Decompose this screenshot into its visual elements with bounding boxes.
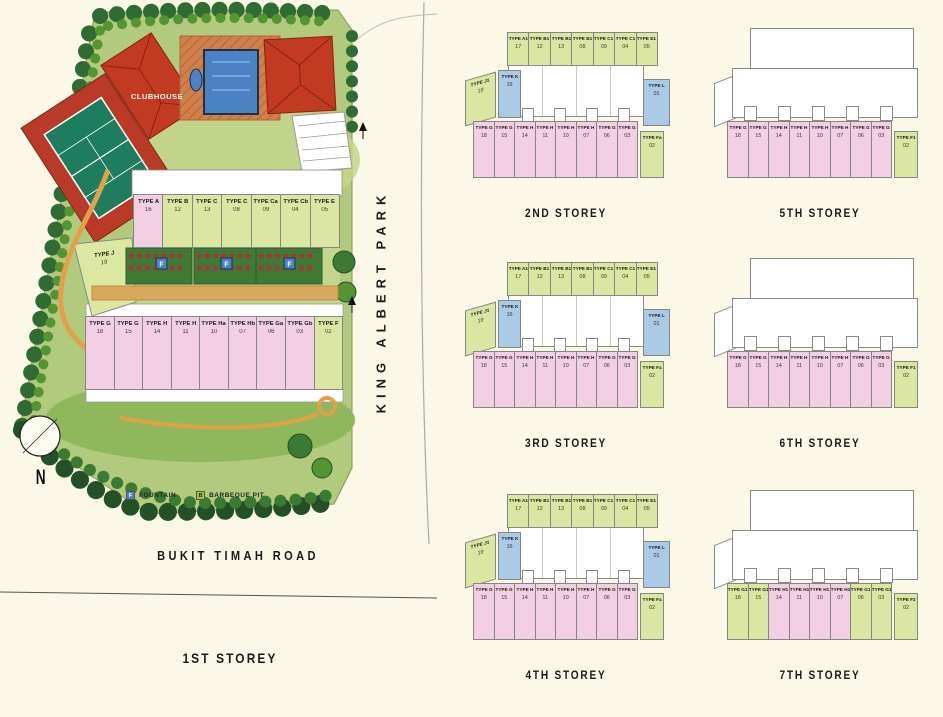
stair-core: [812, 106, 825, 121]
unit-cell: TYPE G06: [850, 121, 872, 178]
unit-cell: TYPE H11: [535, 583, 557, 640]
unit-type-label: TYPE K: [501, 305, 518, 311]
unit-cell: TYPE H10: [809, 121, 831, 178]
unit-number-label: 07: [583, 133, 589, 139]
lower-unit-row: TYPE G18TYPE G15TYPE H14TYPE H11TYPE Ha1…: [86, 316, 343, 390]
unit-type-label: TYPE E1: [637, 267, 656, 273]
unit-cell: TYPE G15: [114, 316, 144, 390]
unit-type-label: TYPE H1: [810, 588, 829, 594]
unit-cell: TYPE Cb04: [280, 194, 310, 248]
unit-number-label: 07: [837, 595, 843, 601]
stair-core: [778, 336, 791, 351]
stair-core: [744, 568, 757, 583]
unit-cell: TYPE H10: [555, 583, 577, 640]
unit-cell: TYPE G18: [473, 351, 495, 408]
unit-cell: TYPE H110: [809, 583, 831, 640]
unit-cell: TYPE G15: [494, 351, 516, 408]
unit-cell: TYPE H10: [809, 351, 831, 408]
unit-number-label: 11: [796, 133, 802, 139]
unit-number-label: 15: [755, 595, 761, 601]
fountain-symbol: F: [224, 262, 229, 269]
floor-plan-2nd-storey: TYPE A117TYPE B112TYPE B113TYPE B108TYPE…: [444, 20, 688, 250]
unit-number-label: 06: [858, 363, 864, 369]
unit-type-label: TYPE E1: [637, 37, 656, 43]
unit-number-label: 06: [268, 329, 275, 336]
unit-cell: TYPE B108: [571, 262, 593, 296]
unit-type-label: TYPE B1: [551, 499, 570, 505]
unit-type-label: TYPE C1: [594, 37, 613, 43]
unit-cell: TYPE B113: [550, 32, 572, 66]
unit-number-label: 11: [182, 329, 188, 336]
stair-core: [522, 108, 534, 122]
unit-type-label: TYPE G: [496, 588, 513, 594]
unit-number-label: 14: [776, 595, 782, 601]
unit-type-label: TYPE Fa: [643, 598, 662, 604]
stair-core: [586, 570, 598, 584]
legend-item-fountain: F FOUNTAIN: [126, 491, 176, 500]
unit-number-label: 02: [903, 143, 909, 149]
unit-cell: TYPE Ha10: [199, 316, 229, 390]
floor-plan-6th-storey: TYPE G18TYPE G15TYPE H14TYPE H11TYPE H10…: [698, 250, 942, 480]
unit-cell: TYPE A117: [507, 262, 529, 296]
unit-type-label: TYPE G: [619, 356, 636, 362]
unit-type-label: TYPE H: [791, 126, 808, 132]
unit-type-label: TYPE Fa: [643, 136, 662, 142]
unit-cell: TYPE H14: [514, 583, 536, 640]
unit-number-label: 18: [735, 595, 741, 601]
unit-type-label: TYPE F1: [897, 136, 916, 142]
unit-number-label: 10: [563, 133, 569, 139]
unit-cell: TYPE Fa02: [640, 593, 664, 640]
floor-plan-drawing: TYPE G18TYPE G15TYPE H14TYPE H11TYPE H10…: [698, 250, 942, 432]
unit-type-label: TYPE G: [852, 356, 869, 362]
unit-number-label: 03: [624, 133, 630, 139]
unit-cell: TYPE G15: [748, 351, 770, 408]
floor-plan-5th-storey: TYPE G18TYPE G15TYPE H14TYPE H11TYPE H10…: [698, 20, 942, 250]
unit-cell: TYPE C104: [614, 262, 636, 296]
unit-cell: TYPE H10: [555, 121, 577, 178]
unit-number-label: 17: [515, 44, 521, 50]
unit-number-label: 03: [878, 363, 884, 369]
unit-cell: TYPE H14: [768, 121, 790, 178]
unit-number-label: 07: [837, 133, 843, 139]
unit-type-label: TYPE C1: [616, 37, 635, 43]
unit-cell: TYPE G115: [748, 583, 770, 640]
unit-type-label: TYPE F: [318, 320, 338, 327]
unit-number-label: 18: [481, 133, 487, 139]
unit-type-label: TYPE C1: [594, 499, 613, 505]
unit-number-label: 10: [817, 133, 823, 139]
unit-type-label: TYPE G1: [851, 588, 871, 594]
unit-number-label: 12: [537, 506, 543, 512]
unit-type-label: TYPE H: [557, 588, 574, 594]
unit-cell: TYPE H11: [535, 121, 557, 178]
storey-label-1st: 1ST STOREY: [149, 650, 311, 666]
stair-core: [880, 336, 893, 351]
unit-cell: TYPE G18: [473, 583, 495, 640]
unit-cell: TYPE G15: [494, 121, 516, 178]
unit-cell: TYPE B112: [528, 262, 550, 296]
roof-outline: [750, 490, 914, 532]
road-label-bukit-timah: BUKIT TIMAH ROAD: [136, 548, 340, 563]
unit-type-label: TYPE G: [496, 126, 513, 132]
unit-cell: TYPE Fa02: [640, 131, 664, 178]
stair-core: [554, 108, 566, 122]
unit-number-label: 13: [204, 207, 211, 214]
unit-type-label: TYPE G: [729, 356, 746, 362]
unit-number-label: 12: [537, 44, 543, 50]
unit-type-label: TYPE G: [598, 126, 615, 132]
floor-plan-drawing: TYPE G18TYPE G15TYPE H14TYPE H11TYPE H10…: [698, 20, 942, 202]
unit-number-label: 06: [858, 595, 864, 601]
upper-block-roofline: [132, 170, 342, 196]
unit-type-label: TYPE C1: [594, 267, 613, 273]
unit-cell: TYPE B112: [528, 494, 550, 528]
unit-number-label: 15: [755, 363, 761, 369]
unit-cell: TYPE B112: [528, 32, 550, 66]
unit-number-label: 18: [96, 329, 103, 336]
unit-number-label: 19: [477, 87, 483, 95]
unit-number-label: 12: [537, 274, 543, 280]
lower-block-balconies: [86, 388, 343, 402]
unit-number-label: 10: [563, 363, 569, 369]
fountain-symbol: F: [159, 262, 164, 269]
floor-title: 7TH STOREY: [713, 670, 928, 682]
unit-cell: TYPE J19: [78, 244, 130, 307]
unit-number-label: 02: [325, 329, 332, 336]
unit-type-label: TYPE H: [770, 356, 787, 362]
fountain-symbol: F: [287, 262, 292, 269]
unit-type-label: TYPE Cb: [283, 198, 308, 205]
unit-type-label: TYPE H: [557, 126, 574, 132]
unit-type-label: TYPE K: [501, 75, 518, 81]
floor-title: 6TH STOREY: [713, 438, 928, 450]
unit-type-label: TYPE L: [648, 84, 664, 90]
unit-number-label: 11: [796, 595, 802, 601]
unit-type-label: TYPE C: [226, 198, 247, 205]
unit-cell: TYPE B113: [550, 262, 572, 296]
unit-number-label: 13: [558, 506, 564, 512]
stair-core: [846, 336, 859, 351]
swimming-pool: [204, 50, 258, 114]
unit-cell: TYPE H07: [576, 351, 598, 408]
unit-number-label: 10: [211, 329, 218, 336]
floor-plan-drawing: TYPE A117TYPE B112TYPE B113TYPE B108TYPE…: [444, 482, 688, 664]
unit-cell: TYPE G15: [494, 583, 516, 640]
unit-type-label: TYPE H: [516, 588, 533, 594]
unit-type-label: TYPE Hb: [230, 320, 255, 327]
stair-core: [880, 106, 893, 121]
unit-cell: TYPE F202: [894, 593, 918, 640]
top-unit-row: TYPE A117TYPE B112TYPE B113TYPE B108TYPE…: [508, 262, 658, 296]
stair-core: [846, 106, 859, 121]
entrance-arrow: [359, 122, 367, 139]
unit-cell: TYPE G118: [727, 583, 749, 640]
unit-number-label: 16: [506, 544, 512, 550]
unit-type-label: TYPE G1: [728, 588, 748, 594]
unit-number-label: 18: [735, 363, 741, 369]
stair-core: [586, 338, 598, 352]
unit-number-label: 06: [604, 595, 610, 601]
roof-outline: [750, 28, 914, 70]
unit-number-label: 15: [501, 595, 507, 601]
clubhouse-roof-2: [264, 36, 336, 113]
unit-type-label: TYPE G: [475, 356, 492, 362]
jacuzzi: [190, 69, 202, 91]
unit-cell: TYPE H111: [789, 583, 811, 640]
unit-type-label: TYPE Ca: [254, 198, 278, 205]
legend-label: BARBEQUE PIT: [209, 492, 264, 499]
floor-title: 5TH STOREY: [713, 208, 928, 220]
unit-type-label: TYPE B1: [530, 267, 549, 273]
floor-title: 4TH STOREY: [459, 670, 674, 682]
unit-number-label: 07: [239, 329, 246, 336]
unit-type-label: TYPE H: [557, 356, 574, 362]
unit-type-label: TYPE H: [537, 126, 554, 132]
floor-plan-4th-storey: TYPE A117TYPE B112TYPE B113TYPE B108TYPE…: [444, 482, 688, 712]
unit-cell: TYPE G18: [727, 351, 749, 408]
unit-type-label: TYPE G: [873, 356, 890, 362]
unit-number-label: 09: [601, 274, 607, 280]
unit-number-label: 14: [522, 595, 528, 601]
stair-core: [554, 570, 566, 584]
unit-number-label: 03: [878, 595, 884, 601]
floor-title: 3RD STOREY: [459, 438, 674, 450]
unit-cell: TYPE H07: [830, 121, 852, 178]
unit-number-label: 16: [145, 207, 152, 214]
unit-number-label: 11: [542, 133, 548, 139]
unit-type-label: TYPE A1: [509, 267, 528, 273]
floor-plan-3rd-storey: TYPE A117TYPE B112TYPE B113TYPE B108TYPE…: [444, 250, 688, 480]
legend-label: FOUNTAIN: [139, 492, 176, 499]
stair-core: [522, 338, 534, 352]
unit-cell: TYPE G06: [596, 583, 618, 640]
unit-type-label: TYPE G: [118, 320, 139, 327]
fountain-legend-icon: F: [126, 491, 135, 500]
unit-cell: TYPE F102: [894, 361, 918, 408]
unit-type-label: TYPE A: [138, 198, 159, 205]
unit-cell: TYPE L01: [643, 309, 670, 356]
unit-type-label: TYPE B1: [573, 499, 592, 505]
unit-type-label: TYPE J: [94, 250, 114, 260]
legend: F FOUNTAIN B BARBEQUE PIT: [126, 491, 264, 500]
unit-number-label: 18: [481, 595, 487, 601]
unit-cell: TYPE F02: [314, 316, 344, 390]
unit-type-label: TYPE G: [852, 126, 869, 132]
unit-cell: TYPE G18: [727, 121, 749, 178]
unit-number-label: 12: [174, 207, 181, 214]
unit-cell: TYPE G03: [617, 583, 639, 640]
unit-type-label: TYPE H1: [769, 588, 788, 594]
stair-core: [554, 338, 566, 352]
bottom-unit-row: TYPE G18TYPE G15TYPE H14TYPE H11TYPE H10…: [728, 351, 892, 408]
unit-cell: TYPE Gb03: [285, 316, 315, 390]
unit-number-label: 15: [501, 133, 507, 139]
unit-number-label: 03: [624, 595, 630, 601]
unit-number-label: 05: [644, 44, 650, 50]
unit-cell: TYPE Ca09: [251, 194, 281, 248]
floor-plan-7th-storey: TYPE G118TYPE G115TYPE H114TYPE H111TYPE…: [698, 482, 942, 712]
top-unit-row: TYPE A117TYPE B112TYPE B113TYPE B108TYPE…: [508, 32, 658, 66]
unit-number-label: 14: [776, 363, 782, 369]
unit-cell: TYPE B113: [550, 494, 572, 528]
unit-cell: TYPE J119: [465, 302, 496, 357]
unit-number-label: 10: [817, 363, 823, 369]
unit-type-label: TYPE B1: [573, 37, 592, 43]
unit-number-label: 02: [903, 373, 909, 379]
unit-cell: TYPE H114: [768, 583, 790, 640]
unit-number-label: 17: [515, 274, 521, 280]
top-unit-row: TYPE A117TYPE B112TYPE B113TYPE B108TYPE…: [508, 494, 658, 528]
unit-number-label: 04: [292, 207, 299, 214]
unit-type-label: TYPE G: [475, 126, 492, 132]
unit-number-label: 03: [624, 363, 630, 369]
tree: [312, 458, 332, 478]
unit-number-label: 13: [558, 44, 564, 50]
unit-number-label: 03: [878, 133, 884, 139]
unit-number-label: 19: [477, 317, 483, 325]
tree: [288, 434, 312, 458]
brochure-page: F F F CLUBHOUSE N TYPE A16TYPE B12T: [0, 0, 943, 717]
unit-cell: TYPE G03: [871, 351, 893, 408]
unit-number-label: 15: [125, 329, 132, 336]
bottom-unit-row: TYPE G18TYPE G15TYPE H14TYPE H11TYPE H10…: [728, 121, 892, 178]
unit-cell: TYPE Hb07: [228, 316, 258, 390]
stair-core: [846, 568, 859, 583]
unit-cell: TYPE C08: [221, 194, 251, 248]
unit-number-label: 11: [542, 595, 548, 601]
unit-type-label: TYPE G: [619, 126, 636, 132]
unit-type-label: TYPE G: [89, 320, 110, 327]
unit-cell: TYPE G106: [850, 583, 872, 640]
unit-number-label: 06: [604, 363, 610, 369]
legend-item-barbeque: B BARBEQUE PIT: [196, 491, 264, 500]
unit-cell: TYPE L01: [643, 541, 670, 588]
unit-cell: TYPE H11: [789, 121, 811, 178]
unit-type-label: TYPE H: [516, 356, 533, 362]
unit-cell: TYPE H14: [514, 121, 536, 178]
stair-core: [880, 568, 893, 583]
unit-cell: TYPE E105: [636, 32, 658, 66]
unit-cell: TYPE J119: [465, 534, 496, 589]
unit-cell: TYPE G15: [748, 121, 770, 178]
unit-type-label: TYPE H: [146, 320, 167, 327]
unit-cell: TYPE B12: [162, 194, 192, 248]
barbeque-legend-icon: B: [196, 491, 205, 500]
stair-core: [744, 106, 757, 121]
unit-number-label: 18: [481, 363, 487, 369]
unit-type-label: TYPE B1: [530, 37, 549, 43]
bottom-unit-row: TYPE G18TYPE G15TYPE H14TYPE H11TYPE H10…: [474, 121, 638, 178]
unit-number-label: 14: [522, 363, 528, 369]
king-albert-park-road-edge: [421, 2, 429, 544]
unit-type-label: TYPE A1: [509, 37, 528, 43]
unit-cell: TYPE F102: [894, 131, 918, 178]
unit-type-label: TYPE C1: [616, 267, 635, 273]
unit-cell: TYPE G06: [850, 351, 872, 408]
unit-type-label: TYPE B1: [530, 499, 549, 505]
unit-number-label: 06: [858, 133, 864, 139]
unit-number-label: 10: [563, 595, 569, 601]
unit-cell: TYPE H14: [142, 316, 172, 390]
unit-type-label: TYPE G: [598, 588, 615, 594]
clubhouse-label: CLUBHOUSE: [131, 92, 183, 101]
unit-type-label: TYPE H1: [831, 588, 850, 594]
unit-cell: TYPE H07: [576, 121, 598, 178]
stair-core: [812, 568, 825, 583]
unit-type-label: TYPE Fa: [643, 366, 662, 372]
unit-number-label: 01: [653, 91, 659, 97]
unit-cell: TYPE H14: [768, 351, 790, 408]
unit-cell: TYPE G03: [617, 351, 639, 408]
road-label-king-albert-park: KING ALBERT PARK: [374, 173, 389, 431]
unit-type-label: TYPE E1: [637, 499, 656, 505]
unit-type-label: TYPE H1: [790, 588, 809, 594]
tree: [333, 251, 355, 273]
unit-cell: TYPE E105: [636, 494, 658, 528]
stair-core: [586, 108, 598, 122]
unit-number-label: 08: [233, 207, 240, 214]
bottom-unit-row: TYPE G18TYPE G15TYPE H14TYPE H11TYPE H10…: [474, 351, 638, 408]
unit-type-label: TYPE G: [475, 588, 492, 594]
site-plan: F F F CLUBHOUSE N TYPE A16TYPE B12T: [0, 0, 437, 717]
unit-type-label: TYPE G: [598, 356, 615, 362]
unit-cell: TYPE H11: [535, 351, 557, 408]
unit-type-label: TYPE A1: [509, 499, 528, 505]
unit-type-label: TYPE G: [873, 126, 890, 132]
unit-type-label: TYPE Ha: [202, 320, 226, 327]
unit-number-label: 07: [583, 595, 589, 601]
bottom-unit-row: TYPE G118TYPE G115TYPE H114TYPE H111TYPE…: [728, 583, 892, 640]
unit-cell: TYPE G18: [85, 316, 115, 390]
unit-number-label: 10: [817, 595, 823, 601]
unit-number-label: 11: [796, 363, 802, 369]
unit-type-label: TYPE L: [648, 314, 664, 320]
unit-number-label: 02: [649, 373, 655, 379]
unit-type-label: TYPE K: [501, 537, 518, 543]
unit-number-label: 05: [321, 207, 328, 214]
unit-number-label: 08: [579, 274, 585, 280]
unit-cell: TYPE E105: [636, 262, 658, 296]
unit-type-label: TYPE H: [811, 356, 828, 362]
stair-core: [778, 568, 791, 583]
unit-cell: TYPE H107: [830, 583, 852, 640]
unit-type-label: TYPE H: [578, 126, 595, 132]
unit-number-label: 07: [583, 363, 589, 369]
stair-core: [778, 106, 791, 121]
unit-type-label: TYPE H: [537, 356, 554, 362]
bukit-timah-road-edge: [0, 592, 437, 598]
unit-type-label: TYPE C: [196, 198, 217, 205]
unit-type-label: TYPE H: [832, 356, 849, 362]
floor-plan-drawing: TYPE A117TYPE B112TYPE B113TYPE B108TYPE…: [444, 20, 688, 202]
unit-type-label: TYPE H: [578, 356, 595, 362]
unit-type-label: TYPE H: [537, 588, 554, 594]
unit-cell: TYPE A16: [133, 194, 163, 248]
unit-type-label: TYPE E: [314, 198, 335, 205]
unit-cell: TYPE K16: [498, 70, 521, 118]
unit-cell: TYPE H11: [789, 351, 811, 408]
unit-cell: TYPE J119: [465, 72, 496, 127]
unit-number-label: 09: [601, 44, 607, 50]
compass-rose: [20, 416, 60, 456]
unit-cell: TYPE H14: [514, 351, 536, 408]
unit-cell: TYPE H07: [830, 351, 852, 408]
unit-cell: TYPE C109: [593, 262, 615, 296]
floor-title: 2ND STOREY: [459, 208, 674, 220]
unit-cell: TYPE C109: [593, 32, 615, 66]
unit-type-label: TYPE G1: [871, 588, 891, 594]
